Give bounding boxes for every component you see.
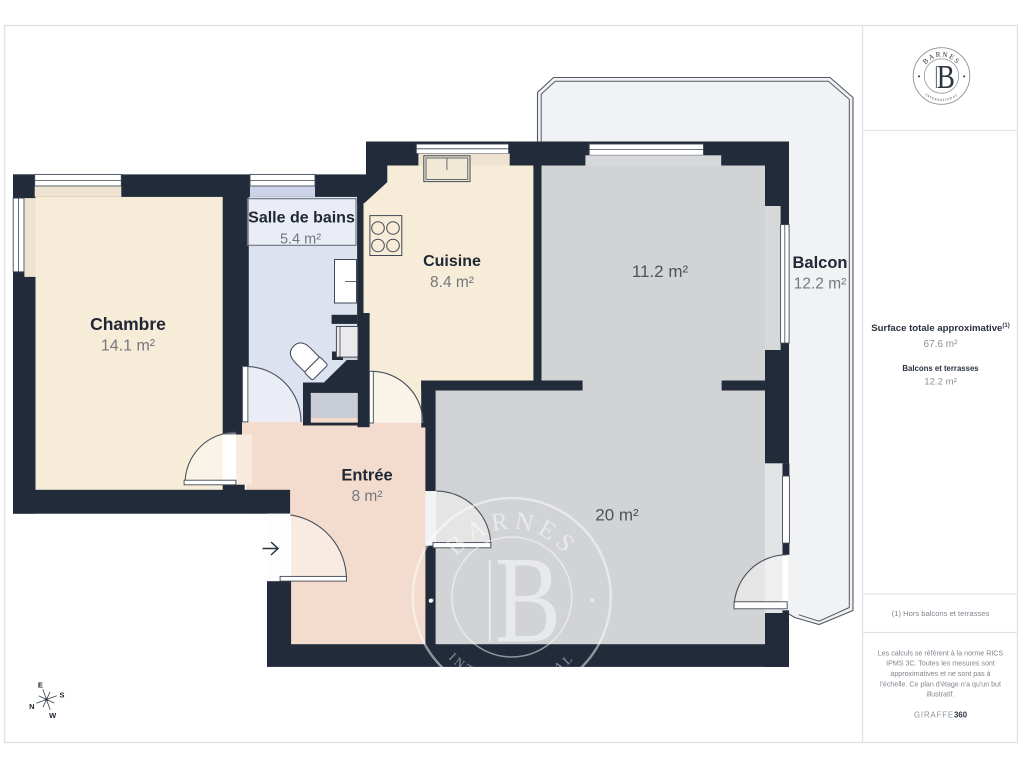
- svg-text:Cuisine: Cuisine: [423, 253, 481, 270]
- svg-text:approximatives et ne sont pas: approximatives et ne sont pas à: [890, 670, 990, 678]
- svg-text:Salle de bains: Salle de bains: [248, 210, 355, 227]
- svg-text:20 m²: 20 m²: [595, 506, 639, 525]
- svg-text:67.6 m²: 67.6 m²: [924, 339, 959, 350]
- svg-text:Chambre: Chambre: [90, 314, 166, 334]
- svg-text:8 m²: 8 m²: [352, 488, 383, 505]
- svg-text:14.1 m²: 14.1 m²: [101, 338, 156, 355]
- svg-text:(1) Hors balcons et terrasses: (1) Hors balcons et terrasses: [892, 609, 990, 618]
- svg-text:Entrée: Entrée: [341, 467, 392, 485]
- svg-text:S: S: [59, 691, 64, 700]
- svg-text:Balcon: Balcon: [792, 254, 847, 272]
- svg-text:W: W: [49, 711, 57, 720]
- svg-text:GIRAFFE360: GIRAFFE360: [914, 711, 968, 720]
- svg-text:8.4 m²: 8.4 m²: [430, 274, 474, 291]
- svg-text:B: B: [495, 532, 561, 669]
- svg-text:5.4 m²: 5.4 m²: [280, 232, 321, 248]
- svg-text:11.2 m²: 11.2 m²: [632, 262, 689, 281]
- svg-text:12.2 m²: 12.2 m²: [794, 276, 847, 293]
- svg-text:Balcons et terrasses: Balcons et terrasses: [902, 364, 979, 373]
- svg-text:l'échelle. Ce plan d'étage n'a: l'échelle. Ce plan d'étage n'a qu'un but: [880, 680, 1001, 688]
- svg-text:B: B: [937, 58, 955, 96]
- svg-text:Surface totale approximative(1: Surface totale approximative(1): [871, 323, 1010, 334]
- svg-text:12.2 m²: 12.2 m²: [924, 377, 957, 388]
- svg-text:illustratif.: illustratif.: [927, 691, 955, 699]
- svg-text:Les calculs se réfèrent à la n: Les calculs se réfèrent à la norme RICS: [878, 649, 1004, 657]
- svg-text:IPMS 3C. Toutes les mesures so: IPMS 3C. Toutes les mesures sont: [886, 660, 995, 668]
- svg-text:E: E: [38, 681, 43, 690]
- svg-text:N: N: [29, 702, 34, 711]
